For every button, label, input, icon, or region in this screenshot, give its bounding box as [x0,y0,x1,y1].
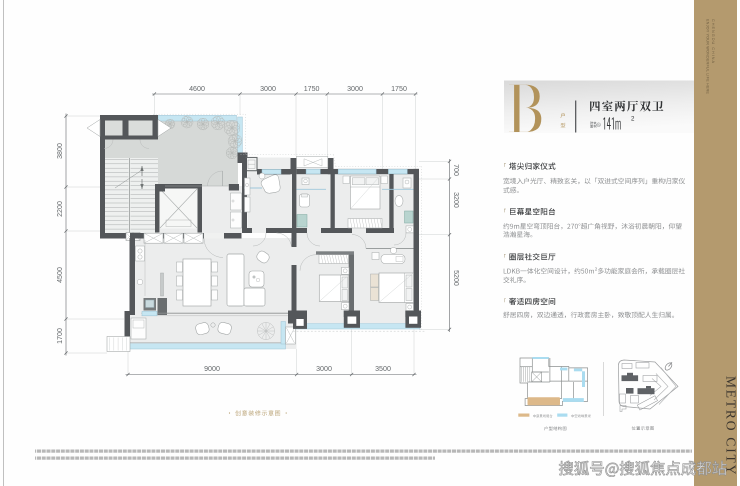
svg-text:3000: 3000 [260,85,276,93]
svg-text:2: 2 [631,116,635,123]
svg-text:5200: 5200 [452,270,460,286]
svg-text:METRO CITY: METRO CITY [724,376,739,476]
svg-text:700: 700 [452,164,460,176]
svg-text:3000: 3000 [316,365,332,373]
svg-text:2200: 2200 [56,201,64,217]
svg-text:4600: 4600 [189,85,205,93]
svg-text:4500: 4500 [56,267,64,283]
svg-text:3200: 3200 [452,192,460,208]
svg-text:ENJOY YOUR WONDERFUL LIFE HERE: ENJOY YOUR WONDERFUL LIFE HERE [706,19,710,94]
svg-text:9000: 9000 [204,365,220,373]
svg-text:1750: 1750 [304,85,320,93]
svg-text:3000: 3000 [347,85,363,93]
svg-text:CHENGDU CHINA: CHENGDU CHINA [711,19,715,64]
svg-text:1750: 1750 [391,85,407,93]
svg-text:3500: 3500 [375,365,391,373]
svg-text:1700: 1700 [56,328,64,344]
svg-text:3800: 3800 [56,143,64,159]
